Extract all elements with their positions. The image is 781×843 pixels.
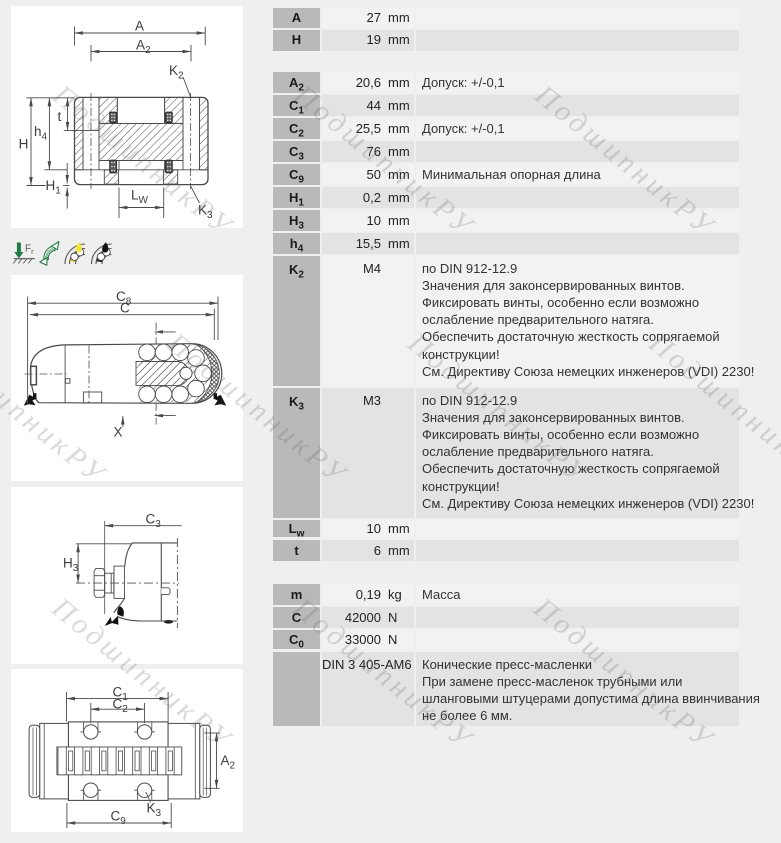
svg-text:A: A	[135, 19, 144, 34]
svg-text:h4: h4	[34, 124, 48, 143]
svg-text:C3: C3	[146, 512, 162, 531]
svg-text:H: H	[19, 137, 29, 152]
svg-text:LW: LW	[131, 188, 149, 207]
svg-text:A2: A2	[136, 38, 151, 57]
svg-text:t: t	[58, 109, 62, 124]
svg-text:X: X	[113, 425, 122, 440]
svg-text:K3: K3	[147, 801, 162, 820]
svg-text:C: C	[120, 301, 130, 316]
svg-text:H1: H1	[46, 178, 62, 197]
svg-text:K2: K2	[169, 63, 184, 82]
svg-text:Fr: Fr	[25, 244, 34, 257]
svg-text:A2: A2	[221, 753, 236, 772]
svg-text:C9: C9	[111, 809, 127, 828]
svg-text:K3: K3	[198, 203, 213, 222]
svg-text:H3: H3	[63, 556, 79, 575]
